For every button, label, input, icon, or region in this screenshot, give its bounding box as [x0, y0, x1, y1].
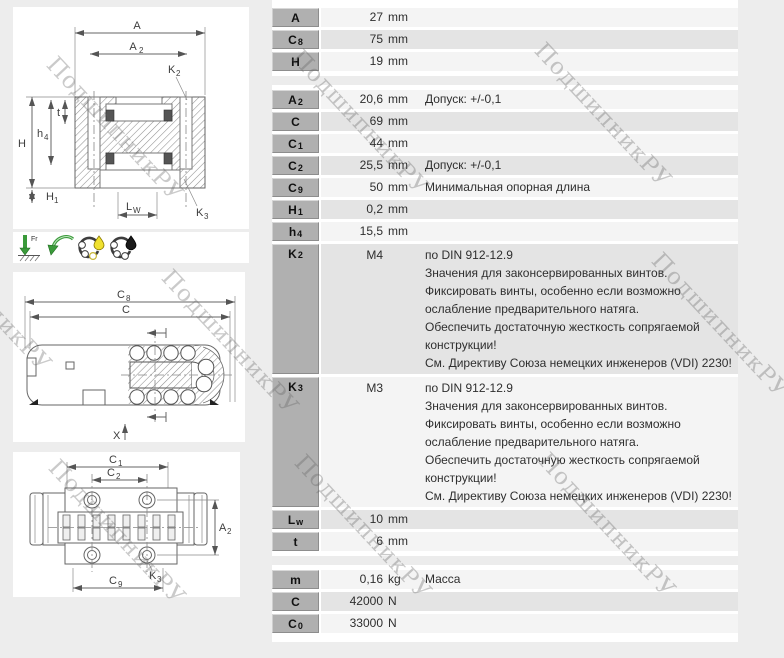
row-body: 33000N [321, 614, 738, 633]
moment-arrow-icon [48, 237, 73, 255]
row-description: Минимальная опорная длина [425, 178, 738, 197]
svg-text:2: 2 [139, 46, 144, 55]
row-label: C9 [272, 178, 319, 197]
row-body: 0,16kgМасса [321, 570, 738, 589]
row-unit: mm [388, 178, 419, 197]
row-value: 20,6 [321, 90, 383, 109]
dim-X: X [113, 424, 125, 442]
row-body: 10mm [321, 510, 738, 529]
row-description [425, 510, 738, 529]
row-value: 44 [321, 134, 383, 153]
svg-text:C: C [109, 575, 117, 587]
row-unit: mm [388, 200, 419, 219]
svg-text:2: 2 [176, 69, 181, 78]
row-label: C1 [272, 134, 319, 153]
row-label: A2 [272, 90, 319, 109]
svg-text:h: h [37, 128, 43, 140]
row-description: по DIN 912-12.9Значения для законсервиро… [425, 379, 738, 505]
svg-text:H: H [18, 138, 26, 150]
row-body: 20,6mmДопуск: +/-0,1 [321, 90, 738, 109]
row-description [425, 222, 738, 241]
spec-row-k2: K2M4по DIN 912-12.9Значения для законсер… [272, 244, 738, 374]
row-label: H [272, 52, 319, 71]
svg-text:9: 9 [118, 580, 123, 589]
svg-text:t: t [57, 107, 60, 119]
row-value: 27 [321, 8, 383, 27]
section-view-drawing: A A 2 K 2 H h 4 t H 1 L W K [13, 7, 249, 229]
dim-H: H [18, 97, 75, 188]
section-separator [272, 556, 738, 565]
spec-table: A27mmC875mmH19mmA220,6mmДопуск: +/-0,1C6… [272, 0, 738, 642]
row-body: 75mm [321, 30, 738, 49]
row-body: 27mm [321, 8, 738, 27]
row-unit: mm [388, 134, 419, 153]
row-description [425, 52, 738, 71]
row-unit: mm [388, 222, 419, 241]
dim-t: t [57, 100, 65, 124]
row-body: 44mm [321, 134, 738, 153]
svg-text:3: 3 [157, 575, 162, 584]
svg-text:W: W [133, 206, 141, 215]
svg-text:K: K [196, 207, 204, 219]
row-label: A [272, 8, 319, 27]
row-description [425, 30, 738, 49]
row-description [425, 200, 738, 219]
row-label: C [272, 112, 319, 131]
spec-row-c8: C875mm [272, 30, 738, 49]
row-label: m [272, 570, 319, 589]
svg-text:A: A [133, 20, 141, 32]
row-value: 25,5 [321, 156, 383, 175]
grease-drop [126, 236, 136, 250]
upper-channel [106, 104, 172, 121]
spec-row-lw: Lw10mm [272, 510, 738, 529]
oil-lubrication-icon [79, 236, 104, 259]
row-body: 19mm [321, 52, 738, 71]
row-value: 10 [321, 510, 383, 529]
row-value: M4 [321, 246, 383, 372]
row-description [425, 532, 738, 551]
svg-text:L: L [126, 201, 132, 213]
row-unit: mm [388, 90, 419, 109]
row-label: C2 [272, 156, 319, 175]
spec-row-h4: h415,5mm [272, 222, 738, 241]
row-description: по DIN 912-12.9Значения для законсервиро… [425, 246, 738, 372]
row-unit [388, 379, 419, 505]
right-outer-cap [194, 493, 207, 545]
row-unit: mm [388, 112, 419, 131]
svg-text:1: 1 [54, 196, 59, 205]
row-value: 15,5 [321, 222, 383, 241]
grease-lubrication-icon [111, 236, 136, 259]
row-label: h4 [272, 222, 319, 241]
oil-drop [94, 236, 104, 250]
row-body: 15,5mm [321, 222, 738, 241]
row-label: t [272, 532, 319, 551]
dim-Lw: L W [118, 192, 157, 219]
spec-row-c0: C033000N [272, 614, 738, 633]
svg-text:X: X [113, 430, 121, 442]
lube-port [66, 362, 74, 369]
svg-text:C: C [107, 467, 115, 479]
svg-text:A: A [219, 522, 227, 534]
row-value: M3 [321, 379, 383, 505]
svg-text:2: 2 [227, 527, 232, 536]
spec-row-m: m0,16kgМасса [272, 570, 738, 589]
dim-K2: K 2 [168, 64, 187, 100]
dim-h4: h 4 [37, 100, 51, 165]
row-value: 75 [321, 30, 383, 49]
spec-row-c: C42000N [272, 592, 738, 611]
row-value: 6 [321, 532, 383, 551]
svg-text:2: 2 [116, 472, 121, 481]
feature-icons-strip: Fr [13, 232, 249, 263]
radial-load-icon: Fr [18, 235, 40, 261]
svg-text:H: H [46, 191, 54, 203]
dim-A: A [75, 20, 205, 95]
row-body: 42000N [321, 592, 738, 611]
svg-text:Fr: Fr [31, 236, 38, 243]
spec-row-c1: C144mm [272, 134, 738, 153]
lower-channel [106, 153, 172, 170]
row-description [425, 134, 738, 153]
row-body: 0,2mm [321, 200, 738, 219]
row-body: 25,5mmДопуск: +/-0,1 [321, 156, 738, 175]
drawing-card-bottom-view: C 1 C 2 A 2 K 3 C [13, 452, 240, 597]
svg-text:C: C [109, 454, 117, 466]
end-port [27, 358, 36, 376]
row-value: 50 [321, 178, 383, 197]
row-description [425, 614, 738, 633]
svg-text:A: A [129, 41, 137, 53]
row-description [425, 592, 738, 611]
spec-row-c: C69mm [272, 112, 738, 131]
row-unit: mm [388, 510, 419, 529]
row-unit [388, 246, 419, 372]
row-body: M4по DIN 912-12.9Значения для законсерви… [321, 244, 738, 374]
drawing-card-side-view: C 8 C X [13, 272, 245, 442]
row-label: C8 [272, 30, 319, 49]
svg-text:K: K [149, 570, 157, 582]
svg-text:4: 4 [44, 133, 49, 142]
row-label: C0 [272, 614, 319, 633]
spec-row-a: A27mm [272, 8, 738, 27]
svg-text:3: 3 [204, 212, 209, 221]
row-label: H1 [272, 200, 319, 219]
row-label: K2 [272, 244, 319, 374]
row-value: 19 [321, 52, 383, 71]
svg-text:1: 1 [118, 459, 123, 468]
top-notch [116, 97, 162, 104]
row-description: Допуск: +/-0,1 [425, 90, 738, 109]
row-unit: mm [388, 156, 419, 175]
spec-row-c9: C950mmМинимальная опорная длина [272, 178, 738, 197]
row-label: Lw [272, 510, 319, 529]
spec-row-a2: A220,6mmДопуск: +/-0,1 [272, 90, 738, 109]
spec-row-k3: K3M3по DIN 912-12.9Значения для законсер… [272, 377, 738, 507]
row-unit: N [388, 614, 419, 633]
svg-text:C: C [122, 304, 130, 316]
left-outer-cap [30, 493, 43, 545]
row-description: Допуск: +/-0,1 [425, 156, 738, 175]
dim-C2: C 2 [92, 467, 147, 481]
row-body: 6mm [321, 532, 738, 551]
row-value: 0,16 [321, 570, 383, 589]
spec-row-h: H19mm [272, 52, 738, 71]
row-unit: mm [388, 8, 419, 27]
bottom-recess [83, 390, 105, 405]
bottom-cutout [100, 170, 180, 188]
row-value: 0,2 [321, 200, 383, 219]
row-description [425, 8, 738, 27]
row-description [425, 112, 738, 131]
row-body: 50mmМинимальная опорная длина [321, 178, 738, 197]
spec-row-c2: C225,5mmДопуск: +/-0,1 [272, 156, 738, 175]
spec-row-t: t6mm [272, 532, 738, 551]
dim-A2: A 2 [90, 41, 187, 55]
svg-text:K: K [168, 64, 176, 76]
row-body: 69mm [321, 112, 738, 131]
row-value: 69 [321, 112, 383, 131]
row-label: C [272, 592, 319, 611]
svg-text:C: C [117, 289, 125, 301]
row-unit: mm [388, 30, 419, 49]
row-value: 42000 [321, 592, 383, 611]
row-description: Масса [425, 570, 738, 589]
drawing-card-section-view: A A 2 K 2 H h 4 t H 1 L W K [13, 7, 249, 229]
row-body: M3по DIN 912-12.9Значения для законсерви… [321, 377, 738, 507]
svg-text:8: 8 [126, 294, 131, 303]
spec-row-h1: H10,2mm [272, 200, 738, 219]
row-unit: kg [388, 570, 419, 589]
dim-H1: H 1 [32, 190, 59, 205]
row-value: 33000 [321, 614, 383, 633]
row-unit: mm [388, 52, 419, 71]
section-separator [272, 76, 738, 85]
row-unit: N [388, 592, 419, 611]
row-unit: mm [388, 532, 419, 551]
row-label: K3 [272, 377, 319, 507]
